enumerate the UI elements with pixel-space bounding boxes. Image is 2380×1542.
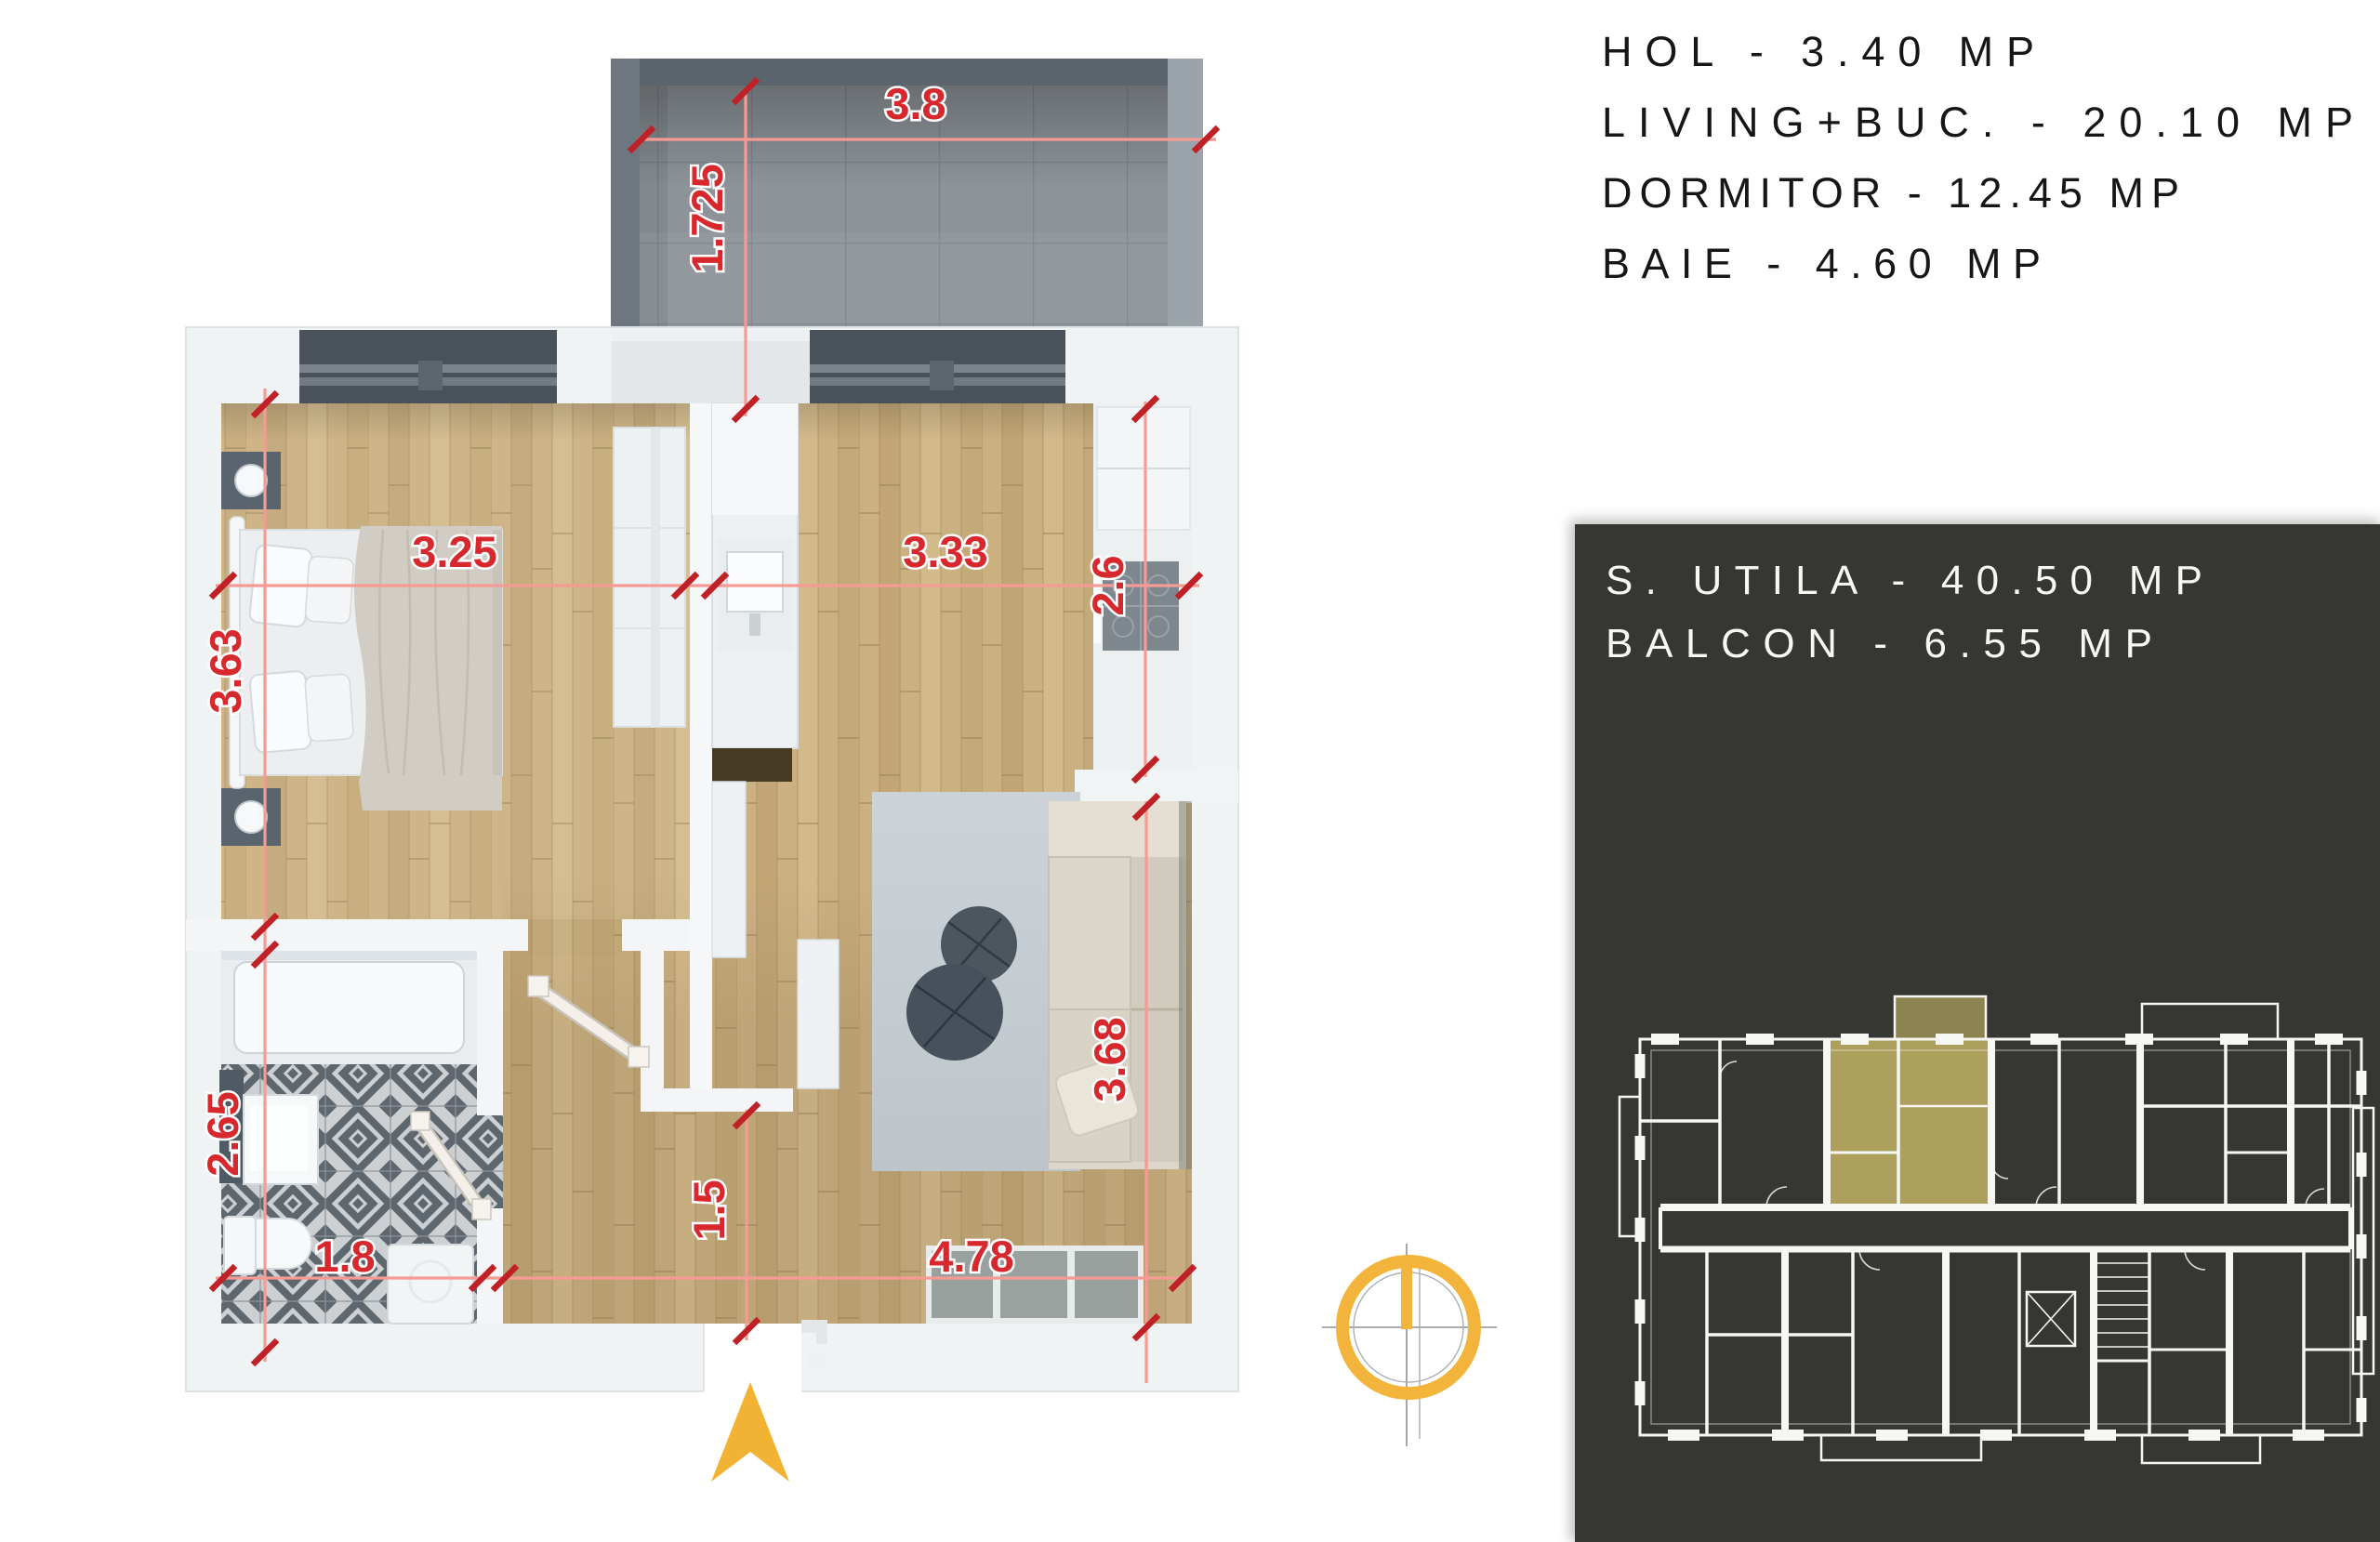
svg-text:BAIE - 4.60 MP: BAIE - 4.60 MP — [1602, 240, 2043, 287]
svg-text:HOL - 3.40 MP: HOL - 3.40 MP — [1602, 28, 2036, 75]
svg-text:1.725: 1.725 — [682, 164, 732, 273]
svg-text:2.65: 2.65 — [198, 1091, 247, 1176]
svg-text:3.25: 3.25 — [412, 527, 496, 576]
svg-text:3.63: 3.63 — [201, 628, 250, 713]
svg-text:1.5: 1.5 — [684, 1180, 734, 1240]
svg-text:S. UTILA - 40.50 MP: S. UTILA - 40.50 MP — [1606, 558, 2204, 603]
svg-text:3.8: 3.8 — [885, 79, 945, 128]
svg-text:DORMITOR - 12.45 MP: DORMITOR - 12.45 MP — [1602, 169, 2181, 217]
svg-text:4.78: 4.78 — [929, 1232, 1013, 1281]
svg-text:3.68: 3.68 — [1085, 1017, 1134, 1101]
svg-text:3.33: 3.33 — [903, 527, 987, 576]
svg-text:2.6: 2.6 — [1083, 555, 1132, 615]
svg-text:1.8: 1.8 — [314, 1232, 375, 1281]
